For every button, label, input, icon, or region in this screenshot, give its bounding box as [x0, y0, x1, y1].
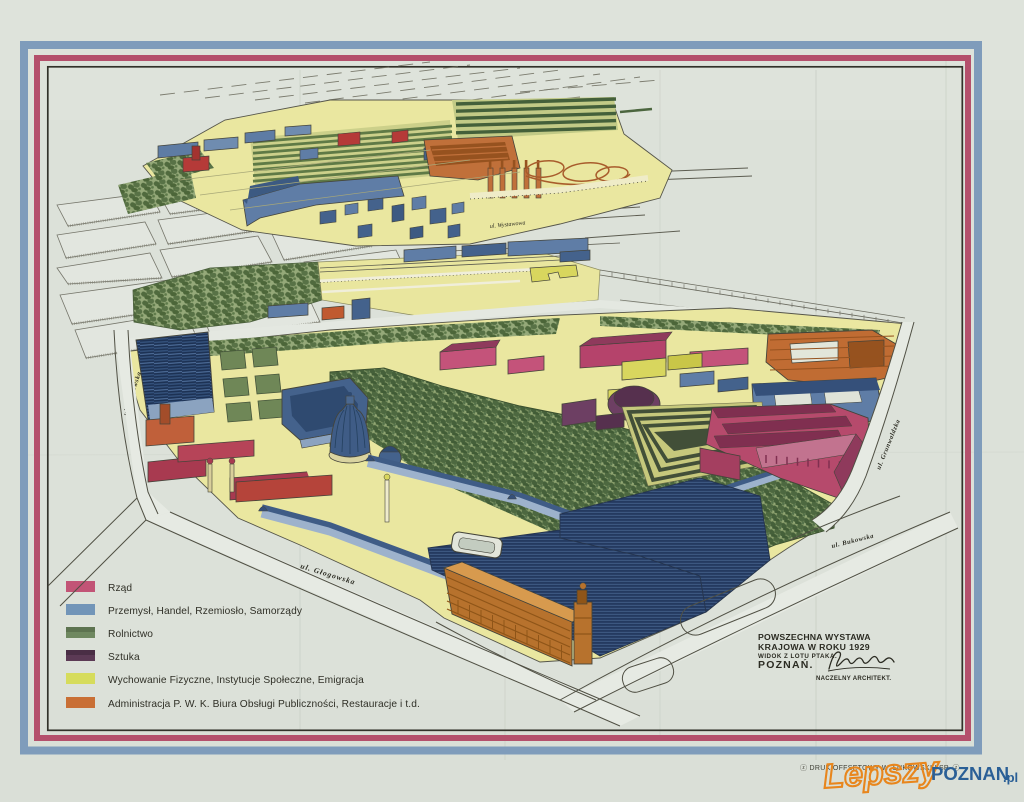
svg-text:Rolnictwo: Rolnictwo	[108, 629, 153, 640]
svg-text:Rząd: Rząd	[108, 583, 132, 594]
svg-text:POZNAN: POZNAN	[931, 763, 1009, 784]
svg-text:NACZELNY ARCHITEKT.: NACZELNY ARCHITEKT.	[816, 676, 891, 682]
svg-text:Sztuka: Sztuka	[108, 652, 140, 663]
svg-text:.pl: .pl	[1003, 770, 1018, 785]
svg-text:Przemysł, Handel, Rzemiosło, S: Przemysł, Handel, Rzemiosło, Samorządy	[108, 606, 303, 617]
svg-text:Administracja P. W. K. Biura O: Administracja P. W. K. Biura Obsługi Pub…	[108, 699, 420, 710]
svg-text:Wychowanie Fizyczne, Instytucj: Wychowanie Fizyczne, Instytucje Społeczn…	[108, 675, 364, 686]
svg-text:KRAJOWA W ROKU 1929: KRAJOWA W ROKU 1929	[758, 642, 870, 652]
svg-text:POWSZECHNA WYSTAWA: POWSZECHNA WYSTAWA	[758, 632, 871, 642]
svg-text:POZNAŃ.: POZNAŃ.	[758, 658, 814, 671]
